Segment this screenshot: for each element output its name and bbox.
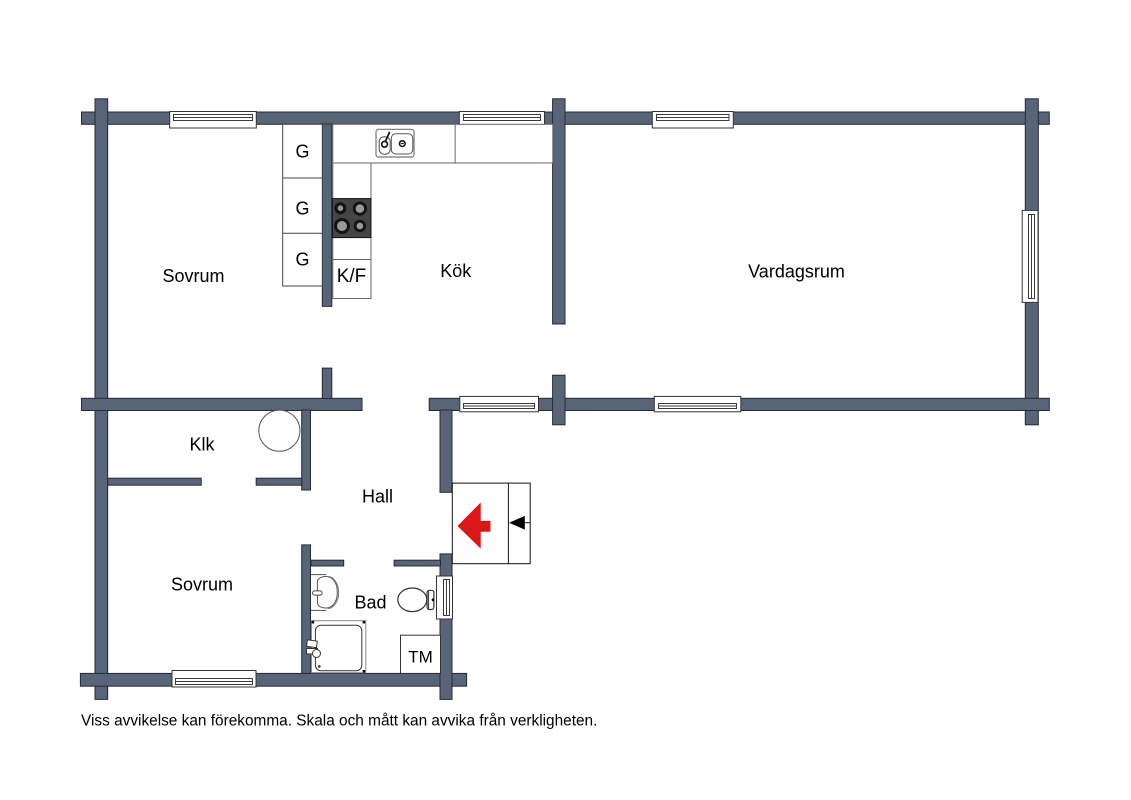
svg-text:Kök: Kök bbox=[440, 261, 472, 281]
svg-text:K/F: K/F bbox=[337, 266, 367, 287]
svg-text:Bad: Bad bbox=[354, 592, 386, 612]
svg-text:G: G bbox=[295, 199, 309, 219]
svg-text:TM: TM bbox=[408, 647, 433, 666]
svg-text:Viss avvikelse kan förekomma.: Viss avvikelse kan förekomma. Skala och … bbox=[81, 713, 597, 730]
svg-text:Sovrum: Sovrum bbox=[162, 266, 224, 286]
svg-text:Vardagsrum: Vardagsrum bbox=[748, 262, 845, 282]
svg-text:G: G bbox=[295, 249, 309, 269]
svg-text:G: G bbox=[295, 141, 309, 161]
svg-text:Klk: Klk bbox=[189, 435, 215, 455]
svg-text:Sovrum: Sovrum bbox=[171, 574, 233, 594]
svg-text:Hall: Hall bbox=[362, 486, 393, 506]
